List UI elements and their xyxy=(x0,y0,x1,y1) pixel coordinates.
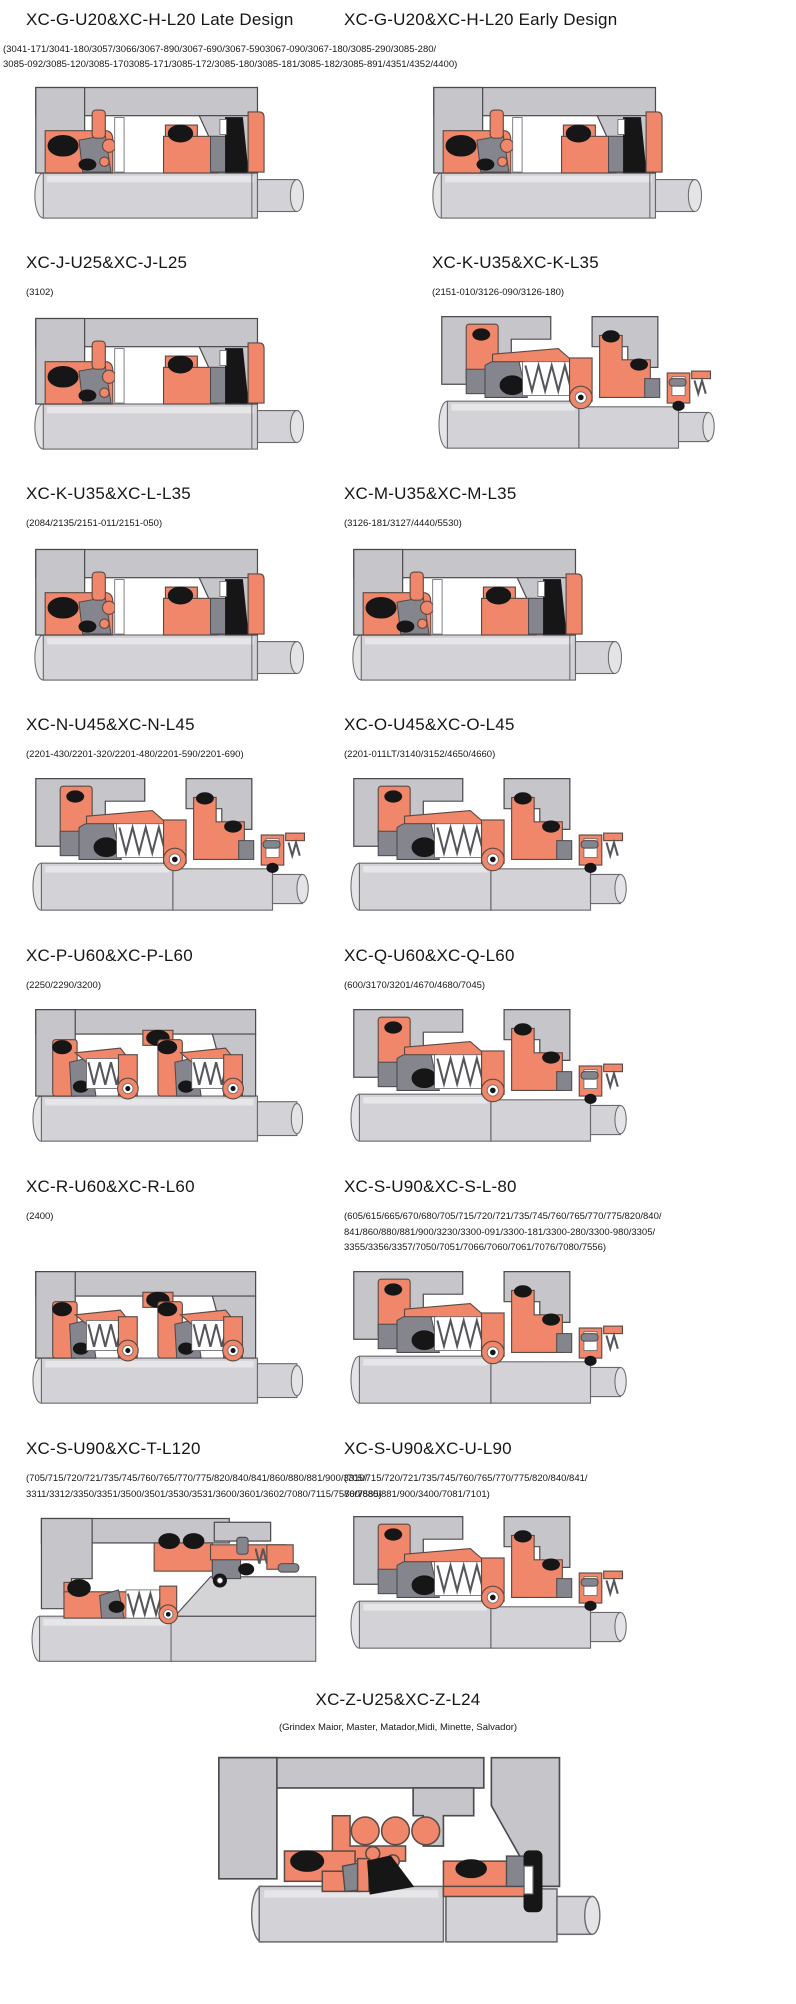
seal-title: XC-J-U25&XC-J-L25 xyxy=(26,253,344,273)
seal-cross-section-diagram xyxy=(26,1511,318,1666)
seal-cross-section-diagram xyxy=(26,1266,318,1421)
seal-cross-section-diagram xyxy=(26,542,318,697)
seal-models-list: (Grindex Maior, Master, Matador,Midi, Mi… xyxy=(0,1720,796,1737)
seal-card: XC-Z-U25&XC-Z-L24 (Grindex Maior, Master… xyxy=(0,1690,796,1963)
seal-models-list: (2400) xyxy=(26,1209,344,1257)
seal-models-list: (2151-010/3126-090/3126-180) xyxy=(432,285,796,302)
seal-card: XC-R-U60&XC-R-L60 (2400) xyxy=(26,1177,344,1421)
seal-cross-section-diagram xyxy=(344,773,636,928)
seal-cross-section-diagram xyxy=(344,542,636,697)
seal-title: XC-Z-U25&XC-Z-L24 xyxy=(0,1690,796,1710)
seal-card: XC-P-U60&XC-P-L60 (2250/2290/3200) xyxy=(26,946,344,1159)
seal-title: XC-S-U90&XC-S-L-80 xyxy=(344,1177,796,1197)
seal-title: XC-O-U45&XC-O-L45 xyxy=(344,715,796,735)
seal-title: XC-S-U90&XC-U-L90 xyxy=(344,1439,796,1459)
row-5: XC-P-U60&XC-P-L60 (2250/2290/3200) XC-Q-… xyxy=(0,946,796,1159)
seal-models-list: (600/3170/3201/4670/4680/7045) xyxy=(344,978,796,995)
seal-cross-section-diagram xyxy=(432,311,724,466)
seal-cross-section-diagram xyxy=(344,1266,636,1421)
seal-title: XC-K-U35&XC-K-L35 xyxy=(432,253,796,273)
row-1-titles: XC-G-U20&XC-H-L20 Late Design XC-G-U20&X… xyxy=(0,10,796,30)
seal-card: XC-S-U90&XC-U-L90 (705/715/720/721/735/7… xyxy=(344,1439,796,1665)
seal-title: XC-S-U90&XC-T-L120 xyxy=(26,1439,344,1459)
seal-card: XC-N-U45&XC-N-L45 (2201-430/2201-320/220… xyxy=(26,715,344,928)
seal-cross-section-diagram xyxy=(26,773,318,928)
seal-models-list: (2250/2290/3200) xyxy=(26,978,344,995)
seal-models-list: (2201-430/2201-320/2201-480/2201-590/220… xyxy=(26,747,344,764)
seal-models-list: (705/715/720/721/735/745/760/765/770/775… xyxy=(26,1471,344,1501)
seal-title: XC-K-U35&XC-L-L35 xyxy=(26,484,344,504)
seal-card: XC-S-U90&XC-T-L120 (705/715/720/721/735/… xyxy=(26,1439,344,1665)
seal-title: XC-M-U35&XC-M-L35 xyxy=(344,484,796,504)
seal-title: XC-R-U60&XC-R-L60 xyxy=(26,1177,344,1197)
row-7: XC-S-U90&XC-T-L120 (705/715/720/721/735/… xyxy=(0,1439,796,1665)
seal-cross-section-diagram xyxy=(26,311,318,466)
seal-cross-section-diagram xyxy=(344,1511,636,1666)
seal-models-list: (2201-011LT/3140/3152/4650/4660) xyxy=(344,747,796,764)
seal-cross-section-diagram xyxy=(26,1004,318,1159)
seal-title: XC-G-U20&XC-H-L20 Early Design xyxy=(344,10,796,30)
seal-title: XC-P-U60&XC-P-L60 xyxy=(26,946,344,966)
seal-card: XC-J-U25&XC-J-L25 (3102) xyxy=(26,253,344,466)
catalog-page: XC-G-U20&XC-H-L20 Late Design XC-G-U20&X… xyxy=(0,0,796,2004)
row-4: XC-N-U45&XC-N-L45 (2201-430/2201-320/220… xyxy=(0,715,796,928)
seal-title: XC-N-U45&XC-N-L45 xyxy=(26,715,344,735)
seal-card: XC-O-U45&XC-O-L45 (2201-011LT/3140/3152/… xyxy=(344,715,796,928)
seal-card: XC-K-U35&XC-L-L35 (2084/2135/2151-011/21… xyxy=(26,484,344,697)
seal-card: XC-Q-U60&XC-Q-L60 (600/3170/3201/4670/46… xyxy=(344,946,796,1159)
seal-models-list: (3041-171/3041-180/3057/3066/3067-890/30… xyxy=(0,42,796,72)
seal-cross-section-diagram xyxy=(181,1745,615,1947)
row-6: XC-R-U60&XC-R-L60 (2400) XC-S-U90&XC-S-L… xyxy=(0,1177,796,1421)
seal-card: XC-S-U90&XC-S-L-80 (605/615/665/670/680/… xyxy=(344,1177,796,1421)
seal-models-list: (2084/2135/2151-011/2151-050) xyxy=(26,516,344,533)
seal-models-list: (3102) xyxy=(26,285,344,302)
seal-cross-section-diagram xyxy=(26,80,318,235)
seal-models-list: (3126-181/3127/4440/5530) xyxy=(344,516,796,533)
seal-cross-section-diagram xyxy=(344,1004,636,1159)
seal-cross-section-diagram xyxy=(424,80,716,235)
seal-title: XC-Q-U60&XC-Q-L60 xyxy=(344,946,796,966)
row-2: XC-J-U25&XC-J-L25 (3102) XC-K-U35&XC-K-L… xyxy=(0,253,796,466)
seal-title: XC-G-U20&XC-H-L20 Late Design xyxy=(26,10,344,30)
row-1-diagrams xyxy=(0,80,796,235)
seal-card: XC-K-U35&XC-K-L35 (2151-010/3126-090/312… xyxy=(344,253,796,466)
seal-models-list: (605/615/665/670/680/705/715/720/721/735… xyxy=(344,1209,796,1257)
seal-models-list: (705/715/720/721/735/745/760/765/770/775… xyxy=(344,1471,796,1501)
row-3: XC-K-U35&XC-L-L35 (2084/2135/2151-011/21… xyxy=(0,484,796,697)
seal-card: XC-M-U35&XC-M-L35 (3126-181/3127/4440/55… xyxy=(344,484,796,697)
